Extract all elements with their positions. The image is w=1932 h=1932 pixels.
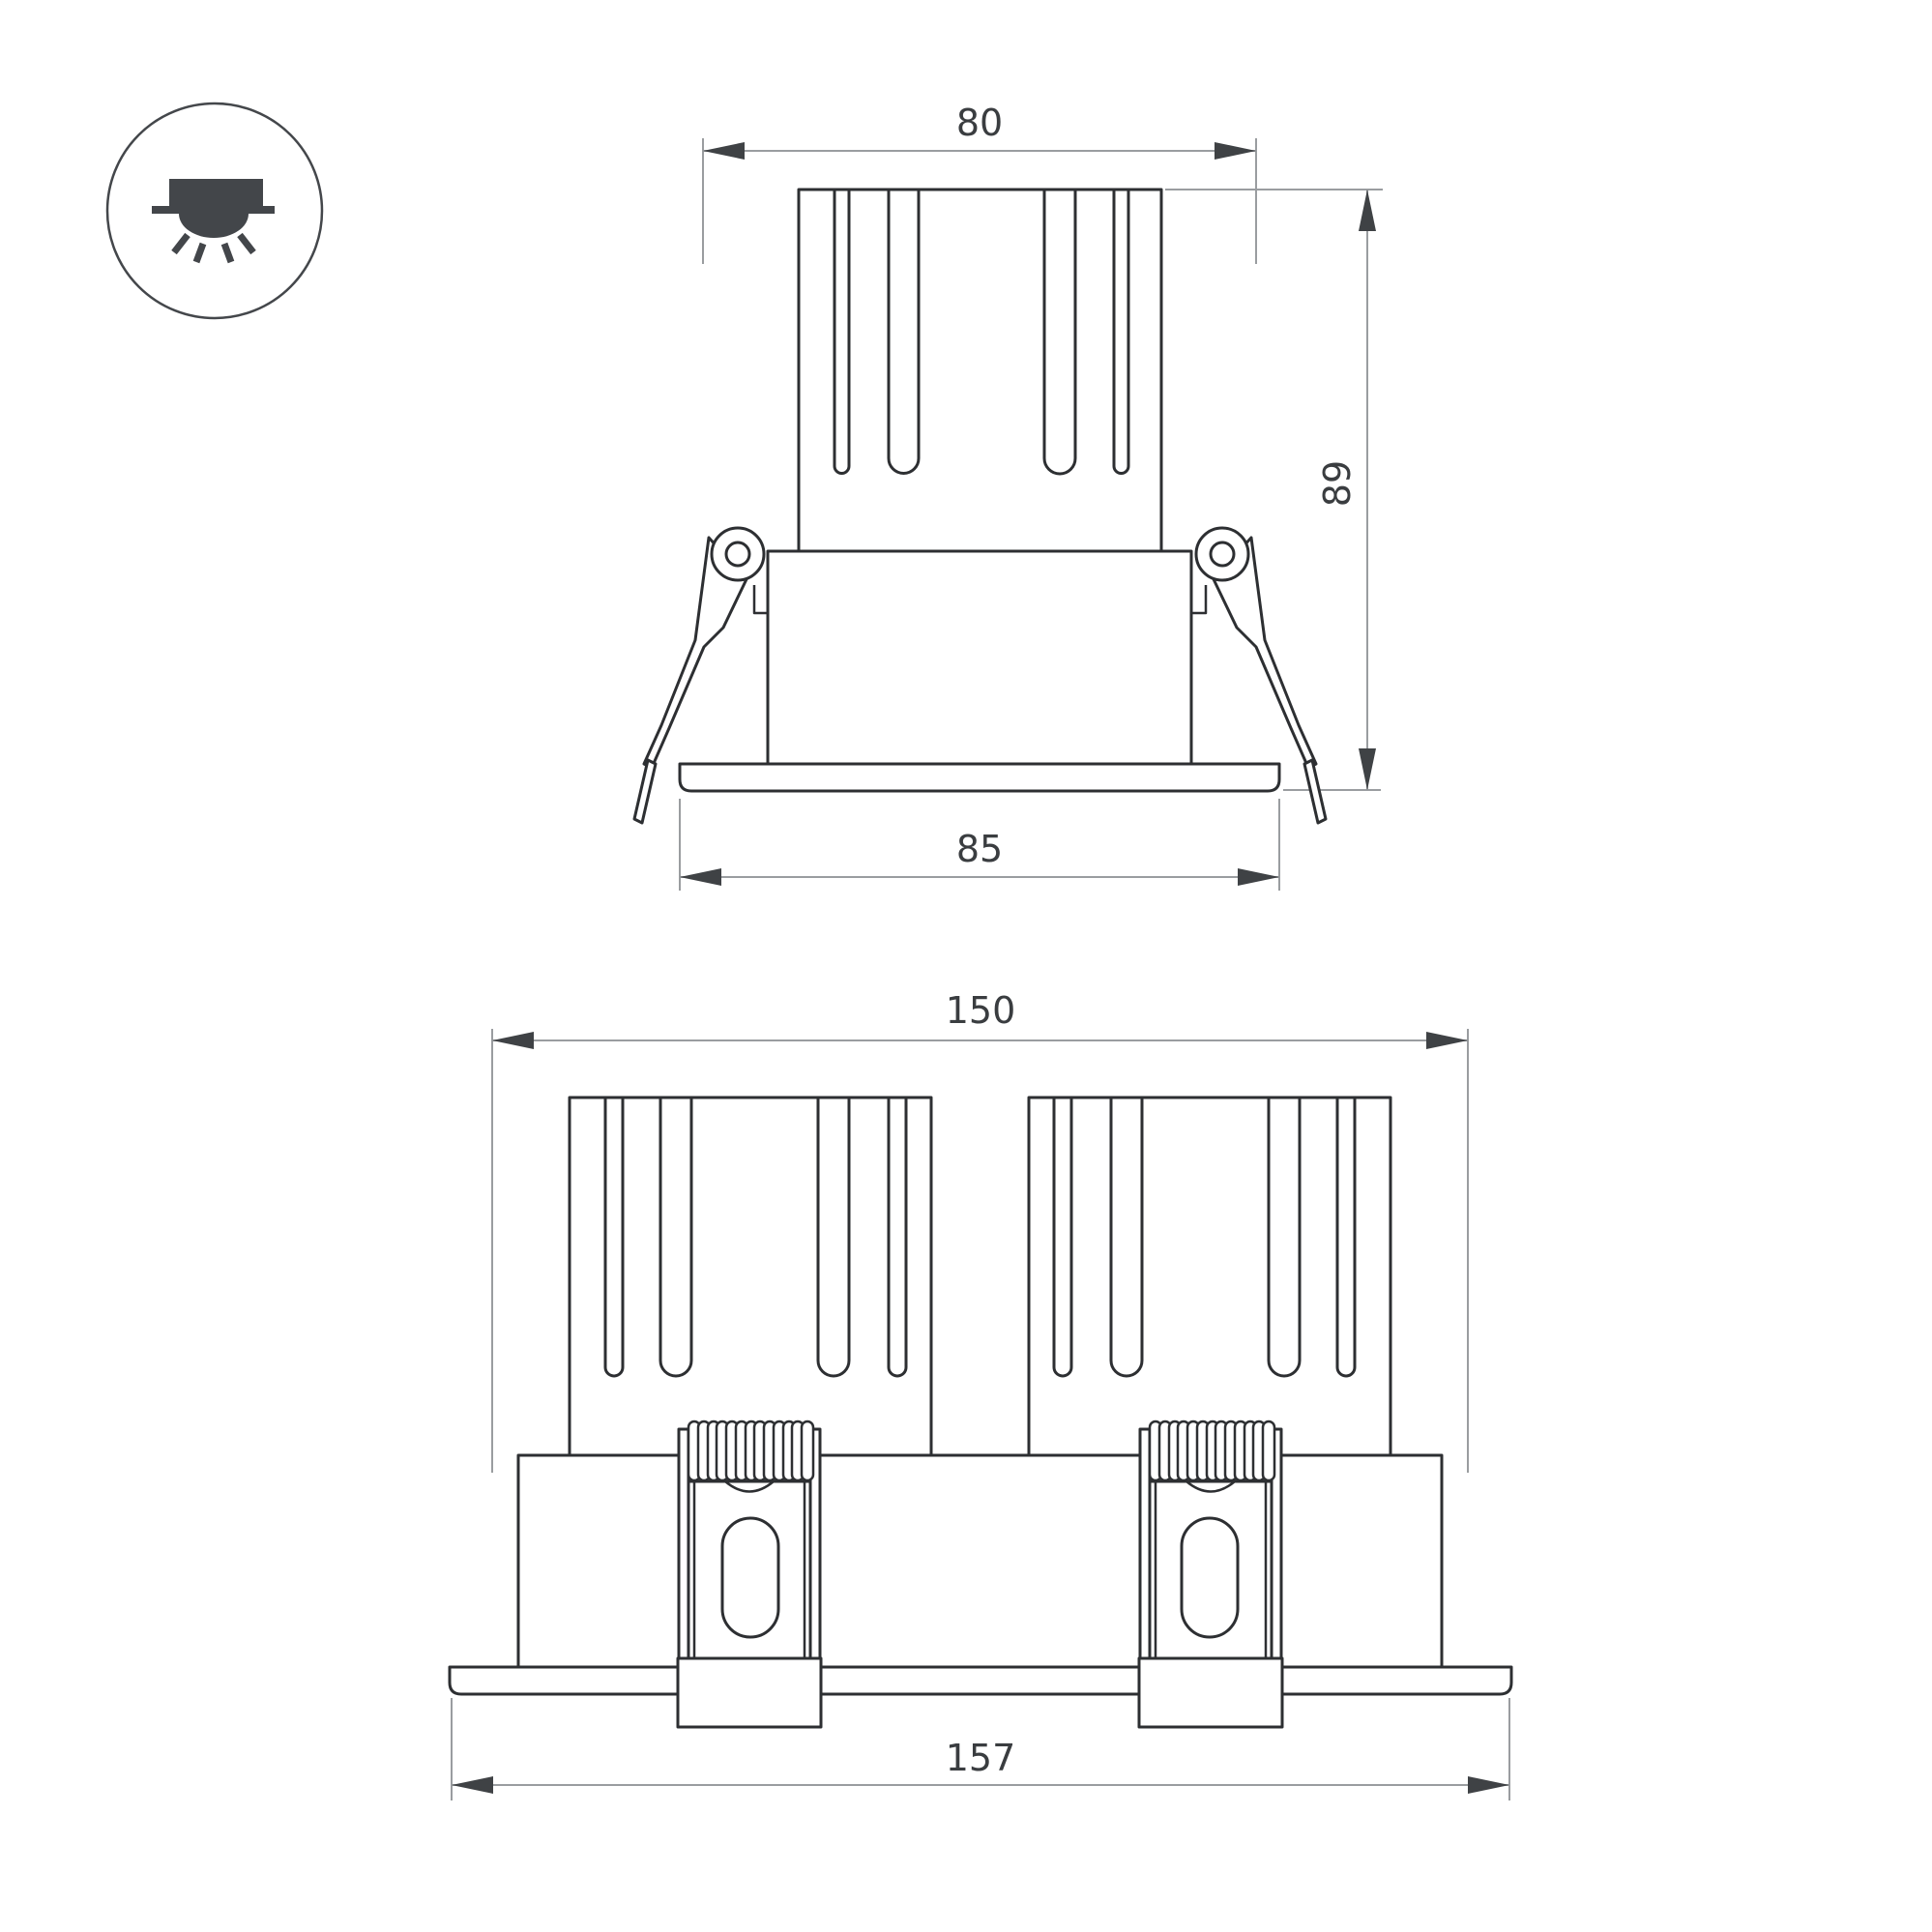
bracket-slot <box>1182 1518 1238 1637</box>
dim-front-width-flange: 85 <box>680 799 1279 891</box>
bracket-body <box>688 1481 810 1658</box>
clip-pivot <box>1196 528 1248 580</box>
dim-front-width-flange-label: 85 <box>956 828 1003 870</box>
clip-bracket-step <box>754 585 768 613</box>
heatsink-slot <box>1269 1098 1300 1376</box>
fixture-body-glyph <box>169 179 263 207</box>
heatsink-slot <box>818 1098 849 1376</box>
heatsink-block-right <box>1029 1098 1390 1455</box>
recessed-downlight-icon <box>107 103 322 318</box>
technical-drawing: 80 89 <box>0 0 1932 1932</box>
housing-body <box>518 1455 1442 1667</box>
spring-clip-left <box>634 528 768 823</box>
trim-flange <box>450 1667 1511 1694</box>
trim-flange <box>680 764 1279 791</box>
heatsink-slot <box>1111 1098 1142 1376</box>
heatsink-slot <box>889 1098 906 1376</box>
heatsink-slot <box>1054 1098 1071 1376</box>
fixture-flange-glyph <box>152 206 275 214</box>
housing-body <box>768 551 1191 764</box>
dim-double-width-top: 150 <box>492 989 1468 1473</box>
dim-double-width-flange-label: 157 <box>946 1737 1016 1779</box>
spring-clip-right <box>1192 528 1326 823</box>
heatsink-slot <box>1114 190 1128 474</box>
clip-pivot <box>712 528 764 580</box>
dim-front-width-top: 80 <box>703 102 1256 264</box>
drawing-canvas: 80 89 <box>0 0 1932 1932</box>
dim-front-width-top-label: 80 <box>956 102 1003 144</box>
double-view: 150 <box>450 989 1511 1800</box>
clip-tip <box>1304 760 1326 823</box>
spring-wire-arc <box>725 1481 774 1492</box>
heatsink-slot <box>660 1098 691 1376</box>
dim-double-width-top-label: 150 <box>946 989 1016 1032</box>
front-view: 80 89 <box>634 102 1383 891</box>
heatsink-slot <box>1044 190 1075 474</box>
bracket-body <box>1150 1481 1272 1658</box>
dim-double-width-flange: 157 <box>452 1698 1509 1800</box>
coil-spring <box>1150 1421 1274 1480</box>
heatsink-slot <box>1337 1098 1355 1376</box>
bracket-slot <box>722 1518 778 1637</box>
bracket-foot <box>678 1658 821 1727</box>
mounting-bracket-right <box>1139 1421 1282 1727</box>
mounting-bracket-left <box>678 1421 821 1727</box>
heatsink-slot <box>605 1098 623 1376</box>
dim-front-height-label: 89 <box>1316 460 1359 507</box>
coil-turn <box>1263 1421 1274 1480</box>
heatsink <box>799 190 1161 551</box>
coil-turn <box>802 1421 813 1480</box>
coil-spring <box>688 1421 813 1480</box>
dim-front-height: 89 <box>1165 190 1383 790</box>
bracket-foot <box>1139 1658 1282 1727</box>
heatsink-slot <box>834 190 849 474</box>
clip-bracket-step <box>1192 585 1206 613</box>
heatsink-slot <box>889 190 919 474</box>
spring-wire-arc <box>1186 1481 1235 1492</box>
clip-tip <box>634 760 656 823</box>
heatsink-block-left <box>570 1098 931 1455</box>
